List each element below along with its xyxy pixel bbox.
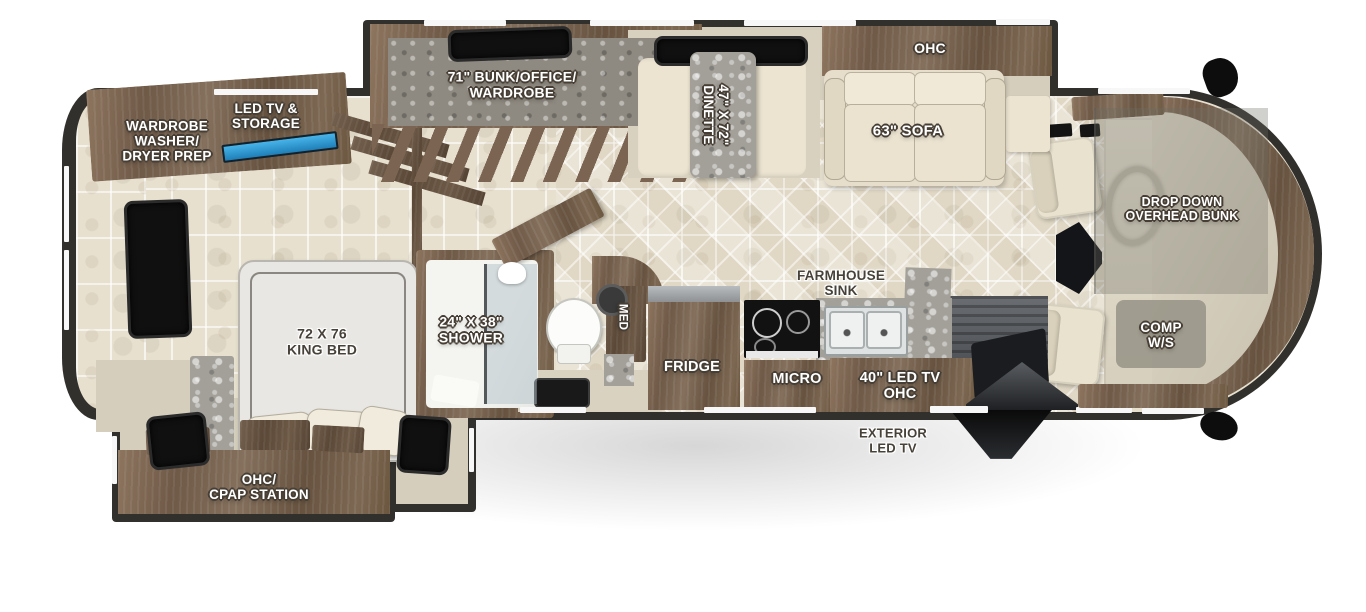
fridge xyxy=(648,302,740,410)
bottom-wall-strip xyxy=(704,407,816,413)
bunk-window xyxy=(447,26,572,62)
rear-cap-strip xyxy=(64,166,69,242)
dinette-bench-left xyxy=(638,58,694,176)
shower-head xyxy=(498,262,526,284)
rv-floorplan-canvas: WARDROBE WASHER/ DRYER PREP LED TV & STO… xyxy=(0,0,1366,612)
sofa-seat-cushion xyxy=(914,104,986,182)
sink-bowl-left xyxy=(829,311,865,349)
label-wardrobe-washer-dryer: WARDROBE WASHER/ DRYER PREP xyxy=(122,118,211,163)
nightstand-tray xyxy=(311,425,364,454)
label-micro: MICRO xyxy=(772,371,821,387)
label-sofa: 63" SOFA xyxy=(873,124,943,141)
toilet-seat-hinge xyxy=(557,344,591,364)
fridge-top-vent xyxy=(648,286,740,302)
sofa-seat-cushion xyxy=(844,104,916,182)
label-drop-down-bunk: DROP DOWN OVERHEAD BUNK xyxy=(1125,195,1238,223)
dinette-bench-right xyxy=(750,58,806,176)
label-bunk-office-wardrobe: 71" BUNK/OFFICE/ WARDROBE xyxy=(448,69,577,100)
label-shower: 24" X 38" SHOWER xyxy=(439,314,503,345)
bedroom-side-window xyxy=(124,199,193,339)
label-comp-workstation: COMP W/S xyxy=(1140,320,1181,350)
awning-strip xyxy=(1098,88,1190,94)
label-exterior-led-tv: EXTERIOR LED TV xyxy=(859,426,927,455)
awning-strip xyxy=(424,20,506,26)
label-fridge: FRIDGE xyxy=(664,359,720,375)
awning-strip xyxy=(590,20,694,26)
label-dinette: 47" X 72" DINETTE xyxy=(701,84,731,145)
sofa-armrest-right xyxy=(984,78,1006,180)
label-med-cabinet: MED xyxy=(616,304,629,330)
awning-strip xyxy=(996,19,1050,25)
label-farmhouse-sink: FARMHOUSE SINK xyxy=(797,268,885,298)
bathroom-sink xyxy=(534,378,590,408)
bathroom-granite-column xyxy=(604,354,634,386)
farmhouse-sink xyxy=(824,306,908,356)
sofa-back-cushion xyxy=(914,72,986,106)
bedroom-slideout-window xyxy=(145,411,210,471)
comp-workstation-desk xyxy=(1078,384,1228,408)
label-led-tv-storage: LED TV & STORAGE xyxy=(232,101,300,131)
oven-handle xyxy=(746,351,818,358)
bedroom-wardrobe-window xyxy=(396,414,452,475)
label-led-tv-ohc: 40" LED TV OHC xyxy=(860,370,941,402)
slideout-strip xyxy=(469,428,474,472)
sofa-back-cushion xyxy=(844,72,916,106)
label-king-bed: 72 X 76 KING BED xyxy=(287,326,357,357)
burner xyxy=(786,310,810,334)
sink-bowl-right xyxy=(866,311,902,349)
bottom-wall-strip xyxy=(930,406,988,413)
bottom-wall-strip xyxy=(1142,408,1204,414)
label-ohc-cpap-station: OHC/ CPAP STATION xyxy=(209,472,309,502)
awning-strip xyxy=(744,20,856,26)
cpap-shelf-tray xyxy=(240,420,310,450)
label-ohc-living: OHC xyxy=(914,41,946,57)
cooktop xyxy=(744,300,820,358)
sofa-armrest-left xyxy=(824,78,846,180)
bottom-wall-strip xyxy=(520,407,586,413)
counter-column xyxy=(902,267,951,361)
slideout-strip xyxy=(112,436,117,484)
toilet xyxy=(546,298,600,366)
sofa-end-cabinet xyxy=(1006,96,1050,152)
rear-cap-strip xyxy=(64,250,69,330)
awning-strip xyxy=(214,89,318,95)
burner xyxy=(752,308,782,338)
